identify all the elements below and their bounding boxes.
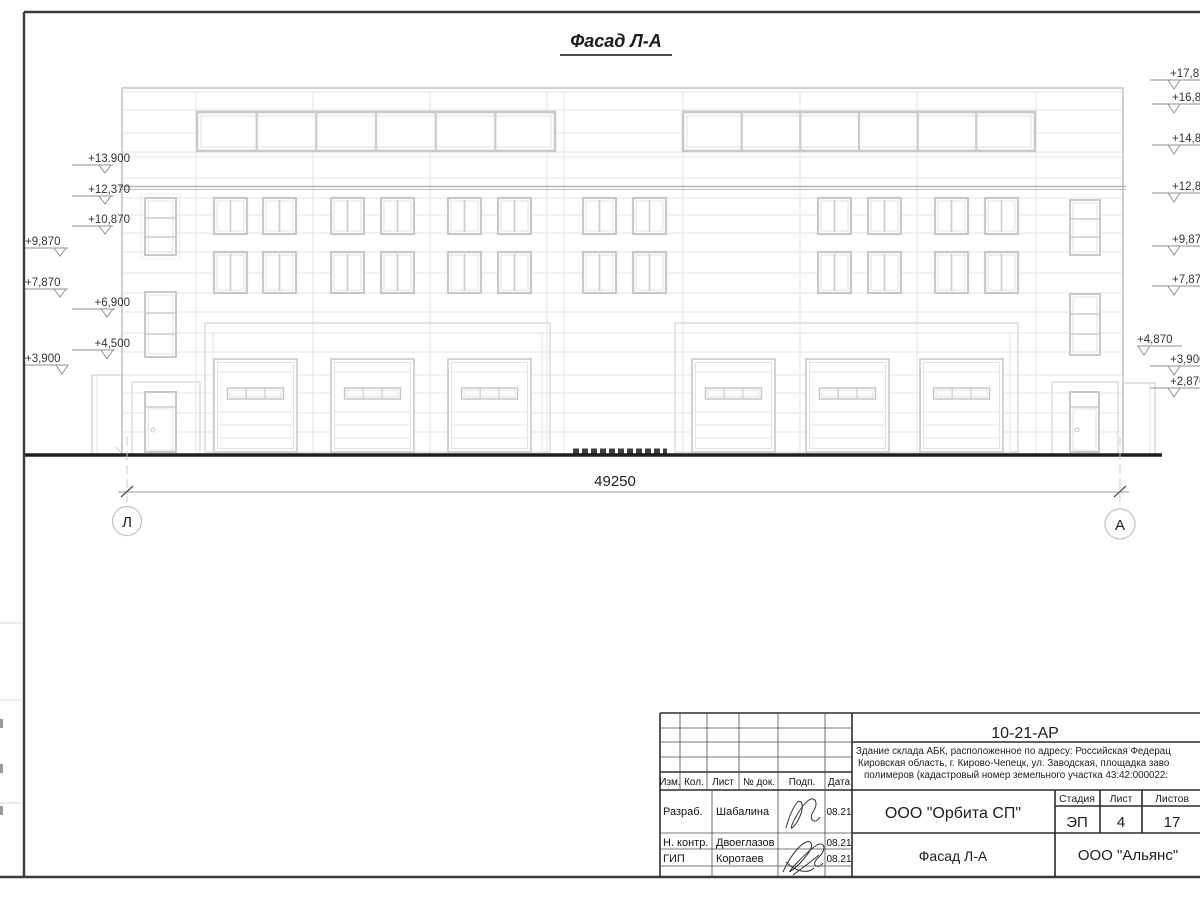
row-date: 08.21: [826, 807, 851, 818]
svg-text:+7,870: +7,870: [1172, 274, 1200, 286]
svg-text:+16,870: +16,870: [1172, 92, 1200, 104]
signature: [783, 842, 824, 875]
elevation-mark: +9,870: [25, 236, 68, 256]
svg-text:+10,870: +10,870: [88, 214, 130, 226]
row-date: 08.21: [826, 838, 851, 849]
project-description-line1: Здание склада АБК, расположенное по адре…: [856, 746, 1171, 757]
stage-value: ЭП: [1066, 814, 1088, 831]
row-name: Двоеглазов: [716, 837, 775, 849]
svg-text:Л: Л: [122, 514, 132, 531]
elevation-marks-right: +17,870 +16,870 +14,870 +12,870 +9,870 +…: [1137, 68, 1200, 397]
elevation-marks-left: +13.900 +12,370 +10,870 +9,870 +7,870 +6…: [25, 153, 130, 374]
svg-text:+12,870: +12,870: [1172, 181, 1200, 193]
left-edge-table-fragment: [0, 623, 23, 815]
svg-text:+9,870: +9,870: [1172, 234, 1200, 246]
elevation-mark: +7,870: [25, 277, 68, 297]
garage-doors: [214, 359, 1003, 452]
elevation-mark: +2,870: [1150, 376, 1200, 397]
elevation-mark: +4,870: [1137, 334, 1182, 355]
svg-text:+7,870: +7,870: [25, 277, 61, 289]
drawing-sheet: +13.900 +12,370 +10,870 +9,870 +7,870 +6…: [0, 0, 1200, 900]
svg-text:А: А: [1115, 517, 1125, 534]
facade-drawing-svg: +13.900 +12,370 +10,870 +9,870 +7,870 +6…: [0, 0, 1200, 900]
elevation-mark: +16,870: [1152, 92, 1200, 113]
page-title: Фасад Л-А: [570, 31, 662, 51]
facade-elevation: [24, 88, 1162, 455]
clerestory-windows-left: [197, 112, 555, 151]
svg-text:+2,870: +2,870: [1170, 376, 1200, 388]
dimension-value: 49250: [594, 473, 636, 490]
clerestory-windows-right: [683, 112, 1035, 151]
row-name: Шабалина: [716, 806, 770, 818]
svg-text:+3,900: +3,900: [1170, 354, 1200, 366]
col-podp: Подп.: [789, 777, 816, 788]
doc-number: 10-21-АР: [991, 725, 1059, 742]
row-name: Коротаев: [716, 853, 764, 865]
row-date: 08.21: [826, 854, 851, 865]
stairwell-windows-left: [141, 194, 180, 357]
svg-text:+13.900: +13.900: [88, 153, 130, 165]
elevation-mark: +12,870: [1152, 181, 1200, 202]
elevation-mark: +14,870: [1152, 133, 1200, 154]
elevation-mark: +9,870: [1152, 234, 1200, 255]
row-role: Н. контр.: [663, 837, 708, 849]
stage-label: Стадия: [1059, 793, 1095, 805]
project-description-line3: полимеров (кадастровый номер земельного …: [864, 770, 1168, 781]
design-company: ООО "Орбита СП": [885, 805, 1021, 822]
col-list: Лист: [712, 777, 734, 788]
svg-text:+14,870: +14,870: [1172, 133, 1200, 145]
col-data: Дата: [828, 777, 851, 788]
row-role: Разраб.: [663, 806, 703, 818]
sheet-label: Лист: [1110, 793, 1133, 805]
svg-text:+3,900: +3,900: [25, 353, 61, 365]
canopy-band: [119, 187, 1126, 190]
svg-text:+6,900: +6,900: [95, 297, 131, 309]
sheets-total: 17: [1164, 814, 1181, 831]
elevation-mark: +3,900: [1150, 354, 1200, 375]
windows-row-upper: [214, 198, 1018, 234]
contractor: ООО "Альянс": [1078, 847, 1178, 864]
elevation-mark: +7,870: [1152, 274, 1200, 295]
elevation-mark: +17,870: [1150, 68, 1200, 89]
sheet-number: 4: [1117, 814, 1125, 831]
svg-text:+12,370: +12,370: [88, 184, 130, 196]
svg-text:+17,870: +17,870: [1170, 68, 1200, 80]
axis-bubble-right: А: [1105, 509, 1135, 539]
svg-text:+4,500: +4,500: [95, 338, 131, 350]
stairwell-windows-right: [1070, 200, 1100, 355]
col-doc: № док.: [743, 777, 775, 788]
col-kol: Кол.: [684, 777, 704, 788]
windows-row-lower: [214, 252, 1018, 293]
col-izm: Изм.: [659, 777, 680, 788]
sheets-label: Листов: [1155, 793, 1190, 805]
signature: [786, 799, 820, 828]
title-block: Изм. Кол. Лист № док. Подп. Дата Разраб.…: [659, 713, 1200, 877]
axis-bubble-left: Л: [113, 507, 142, 536]
elevation-mark: +3,900: [25, 353, 68, 374]
svg-text:+9,870: +9,870: [25, 236, 61, 248]
svg-text:+4,870: +4,870: [1137, 334, 1173, 346]
porch-left: [92, 375, 124, 455]
row-role: ГИП: [663, 853, 685, 865]
porch-right: [1123, 383, 1155, 455]
drawing-name: Фасад Л-А: [919, 848, 988, 864]
project-description-line2: Кировская область, г. Кирово-Чепецк, ул.…: [858, 758, 1170, 769]
